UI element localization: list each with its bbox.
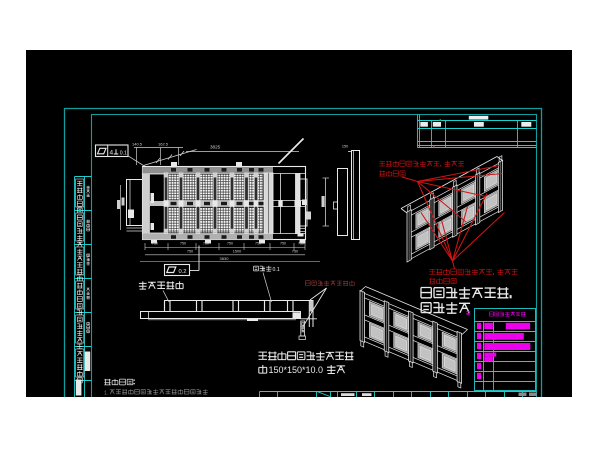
- svg-text:162.5: 162.5: [158, 142, 169, 147]
- svg-text:3825: 3825: [210, 145, 221, 150]
- svg-text:0.1: 0.1: [120, 150, 127, 156]
- svg-text:0.2: 0.2: [178, 269, 186, 275]
- svg-text:150*150*10.0: 150*150*10.0: [269, 365, 324, 375]
- svg-text:750: 750: [255, 242, 261, 246]
- svg-text:4: 4: [109, 150, 113, 157]
- svg-text:750: 750: [298, 242, 304, 246]
- svg-text:750: 750: [180, 242, 186, 246]
- svg-text:140.5: 140.5: [132, 142, 143, 147]
- svg-text:750: 750: [280, 242, 286, 246]
- svg-text:750: 750: [203, 242, 209, 246]
- svg-text:1.: 1.: [104, 391, 108, 397]
- svg-text:0.1: 0.1: [273, 267, 280, 273]
- svg-text:150: 150: [342, 145, 348, 149]
- svg-text:750: 750: [187, 249, 193, 253]
- svg-text:750: 750: [292, 249, 298, 253]
- svg-text:1500: 1500: [233, 249, 241, 253]
- svg-text:750: 750: [152, 242, 158, 246]
- svg-text:750: 750: [227, 242, 233, 246]
- svg-text:3830: 3830: [220, 256, 230, 261]
